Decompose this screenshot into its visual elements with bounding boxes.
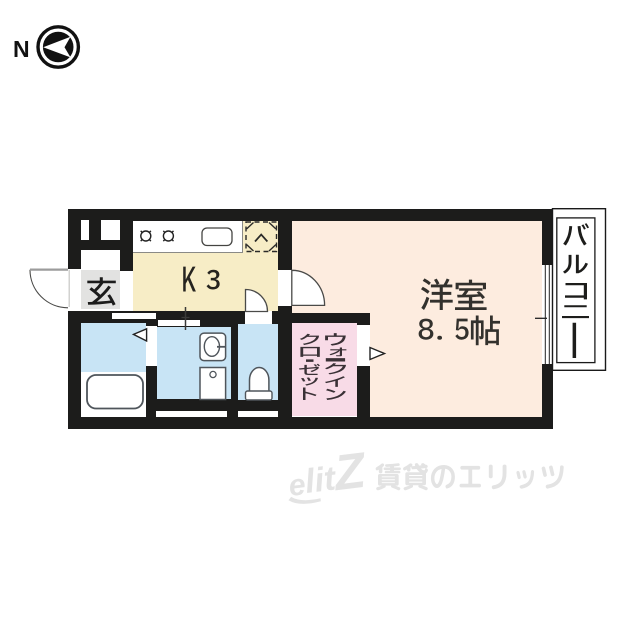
svg-text:elitZ: elitZ bbox=[285, 442, 371, 507]
